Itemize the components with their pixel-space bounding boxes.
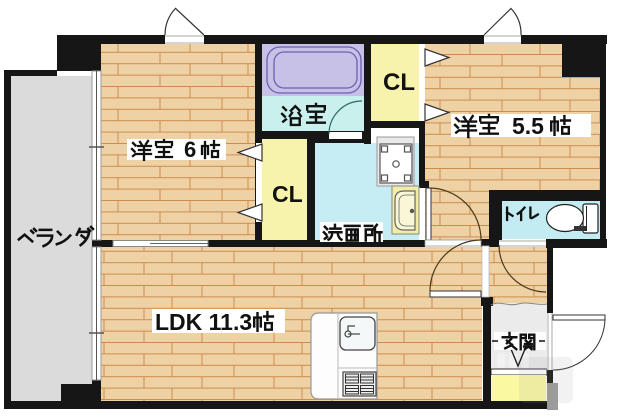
svg-text:5.5: 5.5	[512, 113, 544, 139]
svg-text:CL: CL	[272, 181, 303, 207]
svg-text:CL: CL	[383, 69, 415, 96]
svg-text:6: 6	[184, 137, 196, 162]
svg-text:LDK 11.3: LDK 11.3	[155, 309, 252, 335]
